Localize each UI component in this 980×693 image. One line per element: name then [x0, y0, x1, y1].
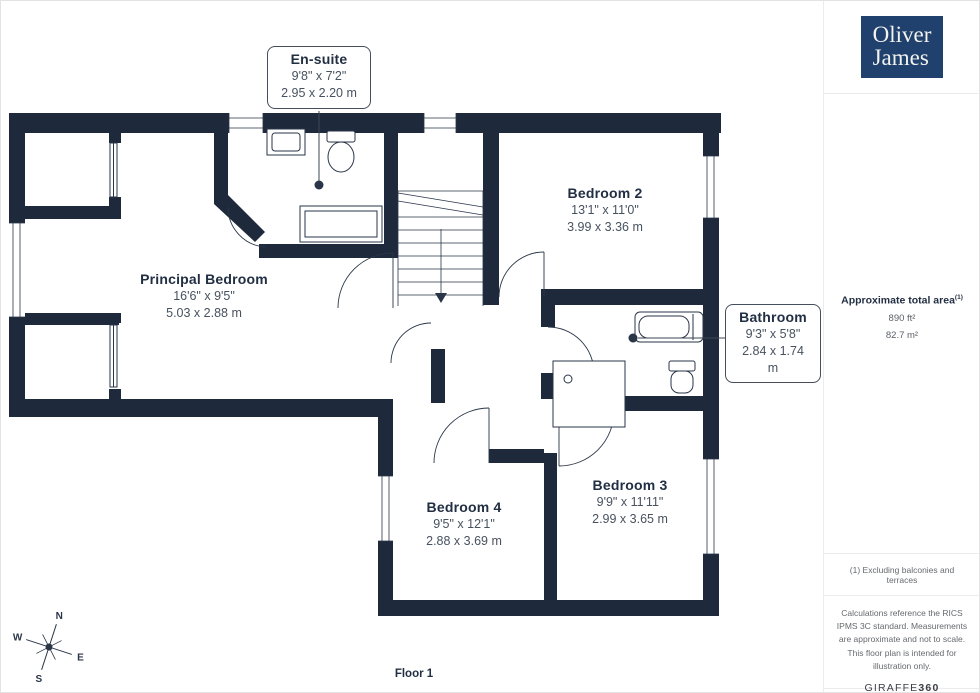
room-label-ensuite: En-suite 9'8" x 7'2" 2.95 x 2.20 m	[267, 46, 371, 109]
bedroom2-door-arc	[499, 252, 544, 297]
sidebar-footer: (1) Excluding balconies and terraces Cal…	[824, 553, 980, 689]
vestibule-door-arc	[391, 323, 431, 363]
info-sidebar: Oliver James Approximate total area(1) 8…	[823, 1, 980, 693]
closet-sliding-door-bottom	[110, 325, 117, 387]
room-name: Bedroom 3	[593, 477, 668, 493]
closet-sliding-door-top	[110, 143, 117, 197]
compass-east-label: E	[77, 653, 84, 664]
room-dims-metric: 2.95 x 2.20 m	[281, 85, 357, 101]
bathroom-leader-dot	[629, 334, 638, 343]
room-label-principal-bedroom: Principal Bedroom 16'6" x 9'5" 5.03 x 2.…	[109, 271, 299, 322]
room-label-bedroom4: Bedroom 4 9'5" x 12'1" 2.88 x 3.69 m	[374, 499, 554, 550]
room-dims-metric: 2.84 x 1.74 m	[736, 343, 810, 376]
room-dims-imperial: 9'5" x 12'1"	[433, 516, 495, 532]
total-area-imperial: 890 ft²	[824, 313, 980, 324]
room-label-bathroom: Bathroom 9'3" x 5'8" 2.84 x 1.74 m	[725, 304, 821, 383]
bedroom4-door-arc	[434, 408, 489, 463]
room-dims-imperial: 9'8" x 7'2"	[292, 68, 347, 84]
room-dims-imperial: 16'6" x 9'5"	[173, 288, 235, 304]
agency-logo-line1: Oliver	[873, 23, 932, 46]
logo-section: Oliver James	[824, 1, 980, 94]
window-principal-left	[9, 223, 25, 317]
floorplan-drawing: N E S W	[1, 1, 823, 693]
total-area-summary: Approximate total area(1) 890 ft² 82.7 m…	[824, 294, 980, 341]
total-area-title: Approximate total area(1)	[824, 294, 980, 307]
room-dims-imperial: 9'9" x 11'11"	[597, 494, 664, 510]
window-bedroom2-right	[703, 156, 719, 218]
room-dims-metric: 5.03 x 2.88 m	[166, 305, 242, 321]
total-area-metric: 82.7 m²	[824, 330, 980, 341]
compass-south-label: S	[35, 674, 42, 685]
floorplan-page: N E S W En-suite 9'8" x 7'2" 2.95 x 2.20…	[0, 0, 980, 693]
provider-watermark: GIRAFFE360	[824, 677, 980, 693]
room-name: Principal Bedroom	[140, 271, 268, 287]
stairs-down-arrow	[435, 293, 447, 303]
agency-logo-line2: James	[873, 46, 932, 69]
ensuite-toilet	[327, 131, 355, 172]
room-name: Bedroom 4	[427, 499, 502, 515]
room-dims-imperial: 13'1" x 11'0"	[571, 202, 639, 218]
floor-caption: Floor 1	[364, 668, 464, 680]
disclaimer-text: Calculations reference the RICS IPMS 3C …	[824, 596, 980, 677]
room-dims-metric: 2.99 x 3.65 m	[592, 511, 668, 527]
window-top-stairs	[424, 113, 456, 133]
ensuite-leader-dot	[315, 181, 324, 190]
footnote-marker: (1)	[955, 294, 963, 301]
room-dims-imperial: 9'3" x 5'8"	[746, 326, 801, 342]
bathroom-toilet	[669, 361, 695, 393]
room-label-bedroom3: Bedroom 3 9'9" x 11'11" 2.99 x 3.65 m	[540, 477, 720, 528]
ensuite-sink	[267, 129, 305, 155]
window-top-ensuite	[229, 113, 263, 133]
bathroom-shower	[553, 361, 625, 427]
room-name: Bathroom	[739, 309, 807, 325]
room-dims-metric: 3.99 x 3.36 m	[567, 219, 643, 235]
compass-west-label: W	[13, 632, 23, 643]
room-dims-metric: 2.88 x 3.69 m	[426, 533, 502, 549]
exclusions-footnote: (1) Excluding balconies and terraces	[824, 554, 980, 596]
compass-north-label: N	[56, 611, 63, 622]
room-name: Bedroom 2	[568, 185, 643, 201]
agency-logo: Oliver James	[861, 16, 944, 78]
compass-rose: N E S W	[13, 611, 84, 685]
room-label-bedroom2: Bedroom 2 13'1" x 11'0" 3.99 x 3.36 m	[515, 185, 695, 236]
room-name: En-suite	[291, 51, 348, 67]
ensuite-shower-tray	[300, 206, 382, 242]
principal-bedroom-door-arc	[338, 253, 393, 308]
staircase	[398, 191, 483, 306]
